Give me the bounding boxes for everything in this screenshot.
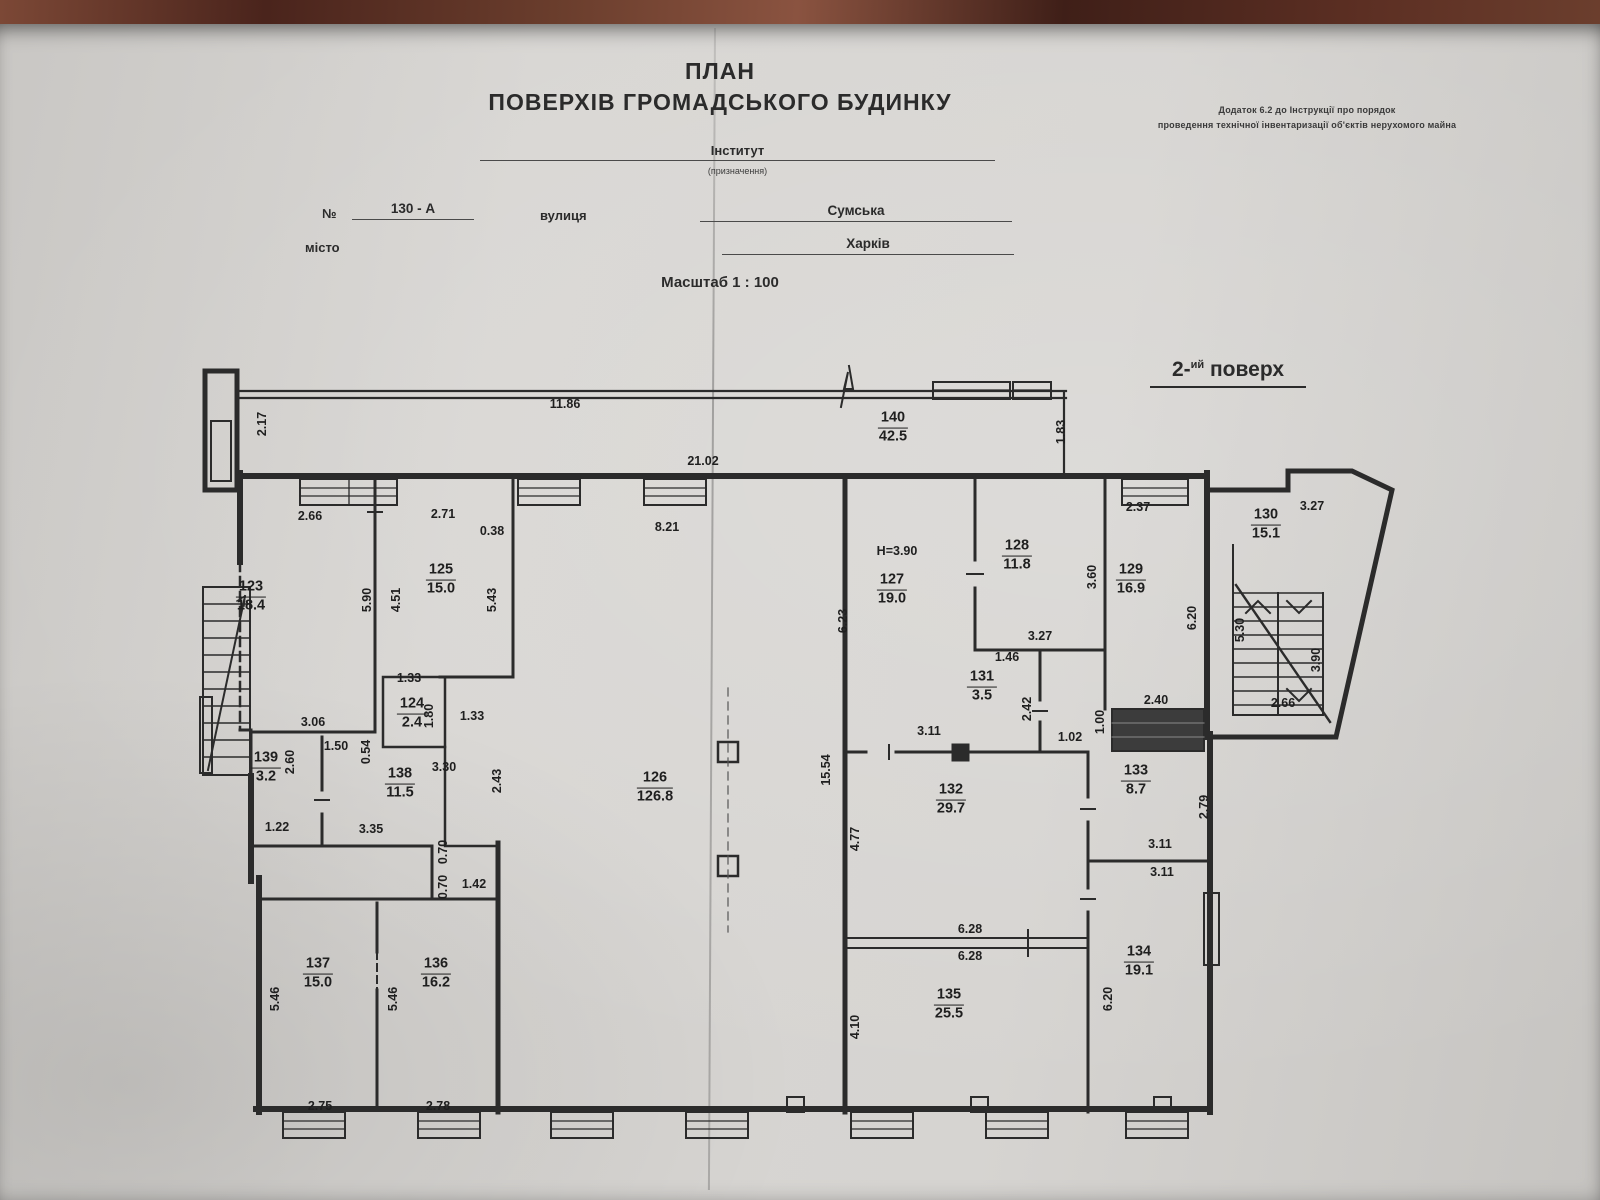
- windows-top: [300, 479, 1188, 505]
- door-ticks: [315, 512, 1095, 899]
- staircase-left: [200, 587, 250, 775]
- shaft-hatched: [1112, 709, 1204, 751]
- interior-walls: [240, 479, 1207, 1112]
- balcony-walls: [237, 391, 1066, 473]
- wall-break-symbol: [841, 366, 853, 407]
- column: [952, 744, 969, 761]
- windows-bottom: [283, 1097, 1188, 1138]
- top-left-block: [205, 371, 237, 490]
- floor-plan-drawing: [0, 0, 1600, 1200]
- staircase-right: [1233, 545, 1330, 722]
- stair-block-outline: [1207, 471, 1392, 737]
- room-124-walls: [383, 677, 445, 747]
